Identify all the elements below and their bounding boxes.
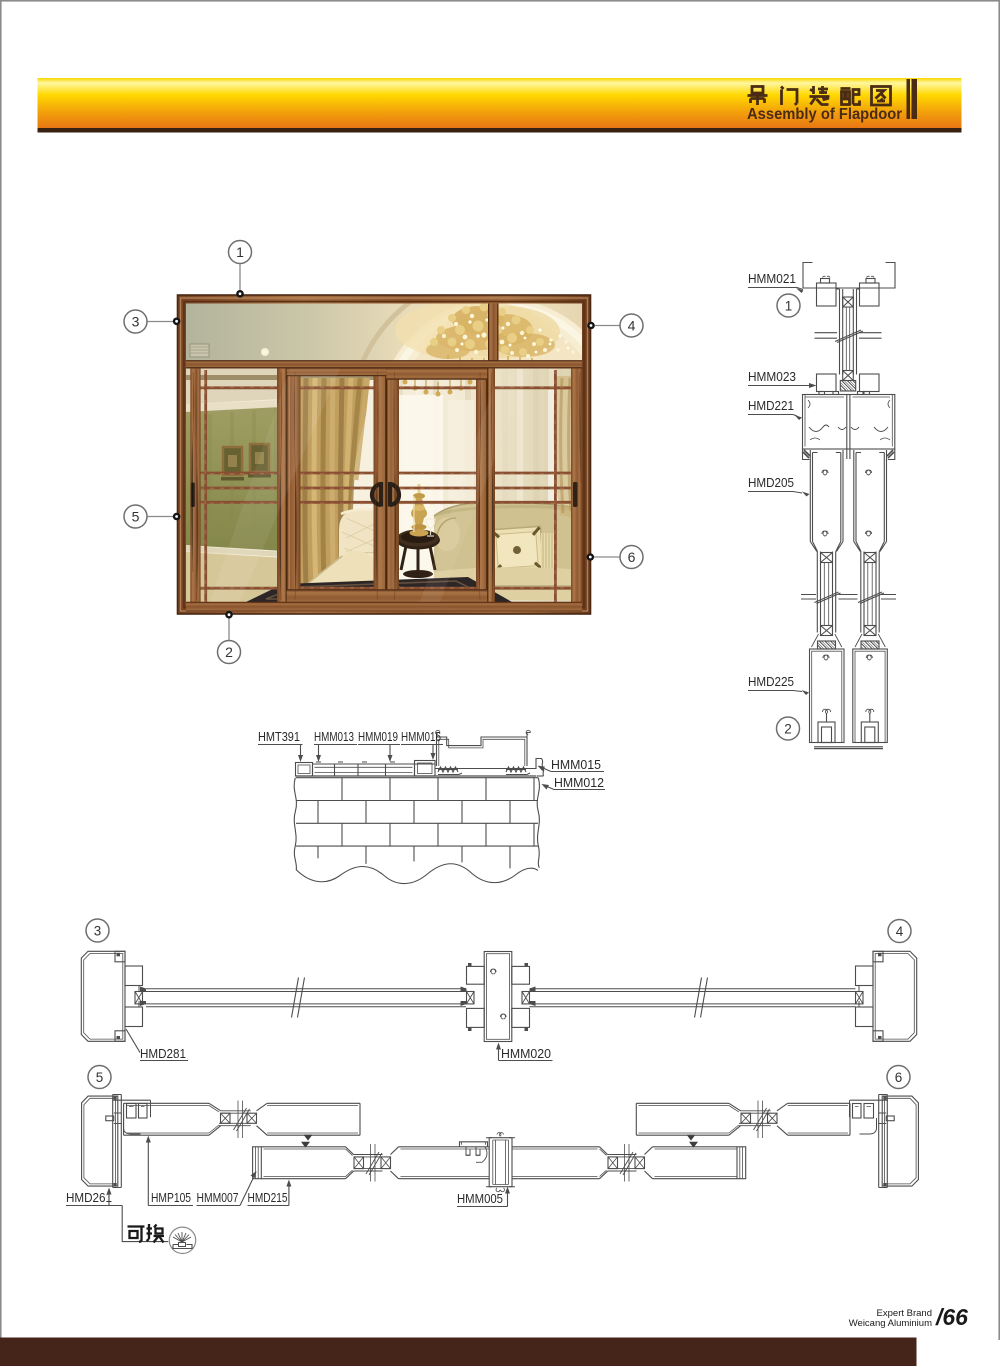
svg-text:4: 4 xyxy=(896,924,904,939)
svg-text:/66: /66 xyxy=(935,1304,968,1330)
svg-text:4: 4 xyxy=(628,318,636,334)
svg-text:HMT391: HMT391 xyxy=(258,729,300,744)
svg-text:Assembly of Flapdoor: Assembly of Flapdoor xyxy=(747,106,902,123)
svg-text:HMM023: HMM023 xyxy=(748,369,796,384)
svg-text:5: 5 xyxy=(132,509,140,525)
svg-text:HMM021: HMM021 xyxy=(748,271,796,286)
svg-text:HMD261: HMD261 xyxy=(66,1190,112,1205)
svg-text:HMM013: HMM013 xyxy=(314,729,354,744)
svg-text:Weicang Aluminium: Weicang Aluminium xyxy=(849,1318,932,1329)
svg-text:HMM019: HMM019 xyxy=(358,729,398,744)
svg-text:1: 1 xyxy=(785,299,793,314)
svg-text:3: 3 xyxy=(132,314,140,330)
svg-text:HMM012: HMM012 xyxy=(554,775,604,790)
svg-text:3: 3 xyxy=(94,924,102,939)
svg-text:1: 1 xyxy=(236,244,244,260)
svg-text:6: 6 xyxy=(628,549,636,565)
svg-text:HMD225: HMD225 xyxy=(748,674,794,689)
svg-text:HMM007: HMM007 xyxy=(197,1190,239,1205)
svg-text:HMM016: HMM016 xyxy=(401,729,441,744)
svg-text:HMD205: HMD205 xyxy=(748,475,794,490)
svg-text:2: 2 xyxy=(784,722,792,737)
svg-text:HMD221: HMD221 xyxy=(748,398,794,413)
svg-text:HMM015: HMM015 xyxy=(551,757,601,772)
svg-text:2: 2 xyxy=(225,644,233,660)
svg-text:HMD281: HMD281 xyxy=(140,1046,186,1061)
svg-text:5: 5 xyxy=(96,1070,104,1085)
svg-text:HMM020: HMM020 xyxy=(501,1046,551,1061)
svg-text:HMD215: HMD215 xyxy=(248,1190,288,1205)
svg-text:HMM005: HMM005 xyxy=(457,1191,503,1206)
svg-text:HMP105: HMP105 xyxy=(151,1190,191,1205)
svg-text:6: 6 xyxy=(895,1070,903,1085)
